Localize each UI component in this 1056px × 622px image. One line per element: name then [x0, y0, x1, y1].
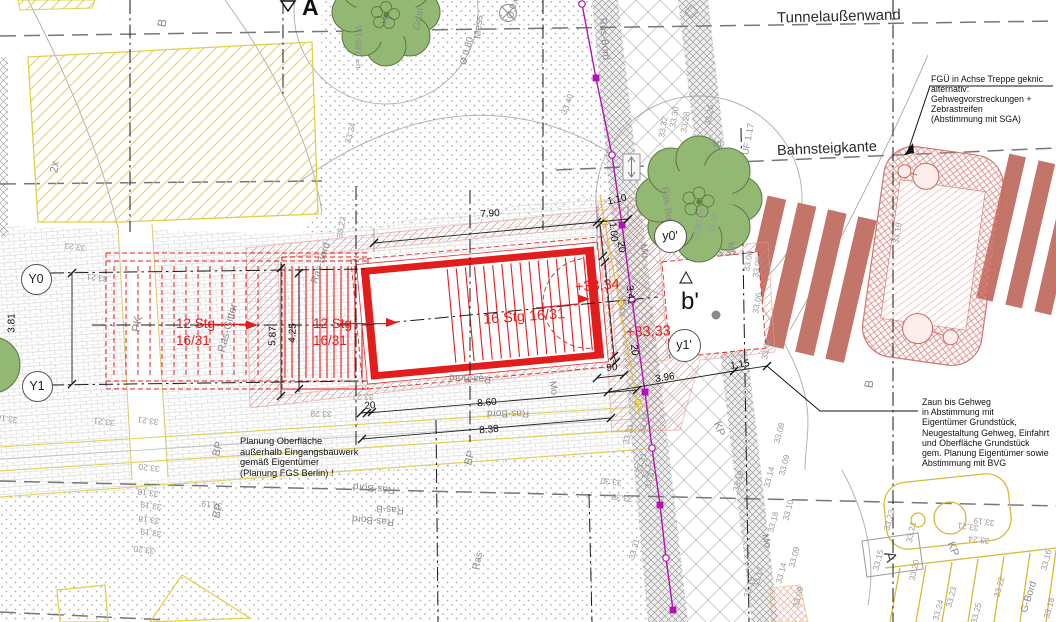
spot-elevation: 33.19 — [890, 222, 904, 245]
surface-label: Mo — [637, 243, 650, 259]
surface-label: Ras-Bord — [352, 481, 395, 496]
dimension-label: 20 — [364, 400, 376, 412]
annotation-layer: Tunnelaußenwand Bahnsteigkante FGÜ in Ac… — [0, 0, 1056, 622]
spot-elevation: 33.06 — [741, 250, 755, 273]
surface-label: B — [861, 379, 876, 389]
spot-elevation: 33.09 — [776, 453, 791, 476]
spot-elevation: 33.09 — [786, 545, 801, 568]
surface-label: u= 0,89-1,5 — [352, 25, 364, 69]
spot-elevation: 33.17 — [750, 565, 765, 588]
spot-elevation: 33.21 — [957, 521, 979, 534]
surface-label: Ø 0,60 — [505, 0, 523, 20]
stair-run-mid-label: 12 Stg 16/31 — [313, 316, 352, 350]
spot-elevation: 33.16 — [1038, 548, 1053, 571]
spot-elevation: 33.27 — [352, 392, 374, 403]
spot-elevation: 33.20 — [133, 544, 155, 557]
surface-label: Mo — [724, 241, 737, 257]
dimension-label: 3.81 — [7, 313, 18, 332]
spot-elevation: 33.31 — [633, 451, 648, 474]
dimension-label: 90 — [606, 362, 618, 374]
surface-label: Mo — [759, 533, 773, 549]
spot-elevation: 33.20 — [907, 559, 921, 582]
level-street-label: +33,33 — [626, 323, 671, 341]
spot-elevation: 33.22 — [991, 575, 1006, 598]
surface-label: BP — [462, 449, 477, 466]
spot-elevation: 33.30 — [611, 492, 633, 504]
surface-label: 1x — [378, 15, 390, 27]
level-top-label: +33,34 — [574, 276, 620, 295]
spot-elevation: 33.19 — [741, 575, 756, 598]
surface-label: Mess — [472, 15, 485, 40]
dimension-label: 7.90 — [480, 208, 500, 220]
axis-marker-Y1: Y1 — [22, 371, 53, 402]
dimension-label: 20 — [628, 344, 640, 356]
section-marker-a-bottom: A — [879, 549, 899, 564]
axis-marker-y0': y0' — [654, 220, 687, 253]
spot-elevation: 33.21 — [93, 416, 115, 429]
dimension-label: 1.15 — [730, 358, 751, 372]
spot-elevation: 33.14 — [761, 465, 776, 488]
stair-run-left-label: 12 Stg 16/31 — [176, 316, 215, 350]
planung-note: Planung Oberfläche außerhalb Eingangsbau… — [240, 436, 370, 478]
spot-elevation: 33.30 — [616, 295, 630, 318]
dimension-label: 5.87 — [267, 326, 279, 346]
surface-label: Mo — [546, 380, 559, 396]
surface-label: BP — [210, 502, 225, 519]
spot-elevation: 33.30 — [600, 476, 622, 488]
spot-elevation: 33.19 — [201, 499, 223, 512]
spot-elevation: 33.19 — [140, 527, 162, 540]
axis-marker-Y0: Y0 — [21, 264, 52, 295]
spot-elevation: 33.24 — [968, 534, 990, 547]
fgue-note: FGÜ in Achse Treppe geknic alternativ: G… — [931, 74, 1056, 124]
spot-elevation: 33.22 — [334, 216, 348, 239]
spot-elevation: 33.28 — [706, 212, 720, 235]
spot-elevation: 33.21 — [137, 415, 159, 428]
surface-label: Ras — [471, 551, 485, 571]
surface-label: G-Bord — [1019, 580, 1039, 614]
spot-elevation: 33.12 — [639, 457, 654, 480]
surface-label: Ras-Gitter — [216, 302, 241, 354]
spot-elevation: 33.07 — [759, 338, 773, 361]
axis-marker-y1': y1' — [668, 329, 701, 362]
spot-elevation: 33.18 — [765, 510, 780, 533]
spot-elevation: 33.31 — [620, 422, 635, 445]
surface-label: PK — [129, 315, 146, 333]
spot-elevation: 33.08 — [750, 256, 764, 279]
surface-label: 2x — [48, 160, 62, 174]
platform-edge-label: Bahnsteigkante — [777, 139, 878, 159]
dimension-label: 1.10 — [606, 193, 627, 208]
surface-label: Ras-Bord — [351, 513, 394, 528]
spot-elevation: 33.18 — [137, 487, 159, 500]
surface-label: S — [711, 139, 724, 148]
surface-label: Ras-Bord — [597, 17, 612, 60]
spot-elevation: 33.10 — [780, 498, 795, 521]
spot-elevation: 33.26 — [702, 104, 716, 127]
spot-elevation: 33.20 — [138, 462, 160, 475]
spot-elevation: 33.14 — [773, 561, 788, 584]
section-marker-a-top: A — [302, 0, 319, 21]
surface-label: Ras-B — [376, 502, 405, 515]
spot-elevation: 33.21 — [904, 521, 918, 544]
dimension-label: 1.00 — [607, 222, 620, 243]
spot-elevation: 33.30 — [667, 106, 681, 129]
spot-elevation: 33.18 — [0, 413, 18, 426]
spot-elevation: 33.31 — [626, 537, 641, 560]
surface-label: UF 1.17 — [740, 122, 755, 155]
section-marker-b-prime: b' — [681, 288, 699, 316]
surface-label: KP — [711, 420, 727, 438]
tunnel-wall-label: Tunnelaußenwand — [777, 6, 901, 26]
zaun-note: Zaun bis Gehweg in Abstimmung mit Eigent… — [922, 397, 1056, 468]
dimension-label: 4.25 — [287, 323, 299, 343]
spot-elevation: 33.28 — [310, 409, 332, 420]
spot-elevation: 33.09 — [790, 585, 805, 608]
dimension-label: 8.60 — [477, 397, 497, 410]
dimension-label: 3.96 — [655, 371, 676, 385]
spot-elevation: 33.06 — [750, 292, 764, 315]
spot-elevation: 33.28 — [678, 111, 692, 134]
spot-elevation: 33.08 — [771, 421, 786, 444]
site-plan: Tunnelaußenwand Bahnsteigkante FGÜ in Ac… — [0, 0, 1056, 622]
spot-elevation: 33.30 — [690, 220, 704, 243]
surface-label: Grün — [412, 7, 427, 31]
dimension-label: 8.38 — [479, 424, 499, 437]
surface-label: BP — [210, 440, 225, 457]
spot-elevation: 33.21 — [86, 272, 108, 285]
dimension-label: 20 — [615, 241, 627, 253]
spot-elevation: 33.32 — [656, 116, 670, 139]
spot-elevation: 33.19 — [973, 516, 995, 529]
spot-elevation: 33.25 — [968, 601, 983, 622]
surface-label: Ras-Bord — [449, 371, 492, 384]
spot-elevation: 33.24 — [342, 121, 357, 144]
spot-elevation: 33.31 — [642, 466, 657, 489]
spot-elevation: 33.23 — [64, 241, 86, 254]
spot-elevation: 33.19 — [140, 500, 162, 513]
surface-label: Ras-Bord — [487, 408, 529, 419]
spot-elevation: 33.40 — [559, 92, 576, 115]
spot-elevation: 33.22 — [881, 508, 896, 531]
spot-elevation: 33.18 — [138, 514, 160, 527]
spot-elevation: 33.24 — [930, 598, 945, 621]
surface-label: KP — [945, 540, 961, 558]
spot-elevation: 33.28 — [636, 411, 651, 434]
spot-elevation: 33.18 — [1041, 596, 1056, 619]
spot-elevation: 33.19 — [730, 469, 745, 492]
spot-elevation: 33.23 — [943, 585, 958, 608]
surface-label: Ras-Bord — [309, 241, 333, 285]
stair-run-main-label: 16 Stg 16/31 — [483, 306, 566, 328]
dimension-label: 3.41 — [624, 285, 637, 306]
spot-elevation: 33.28 — [693, 208, 707, 231]
surface-label: Ø 0,80 — [458, 36, 476, 66]
surface-label: B — [154, 18, 169, 28]
